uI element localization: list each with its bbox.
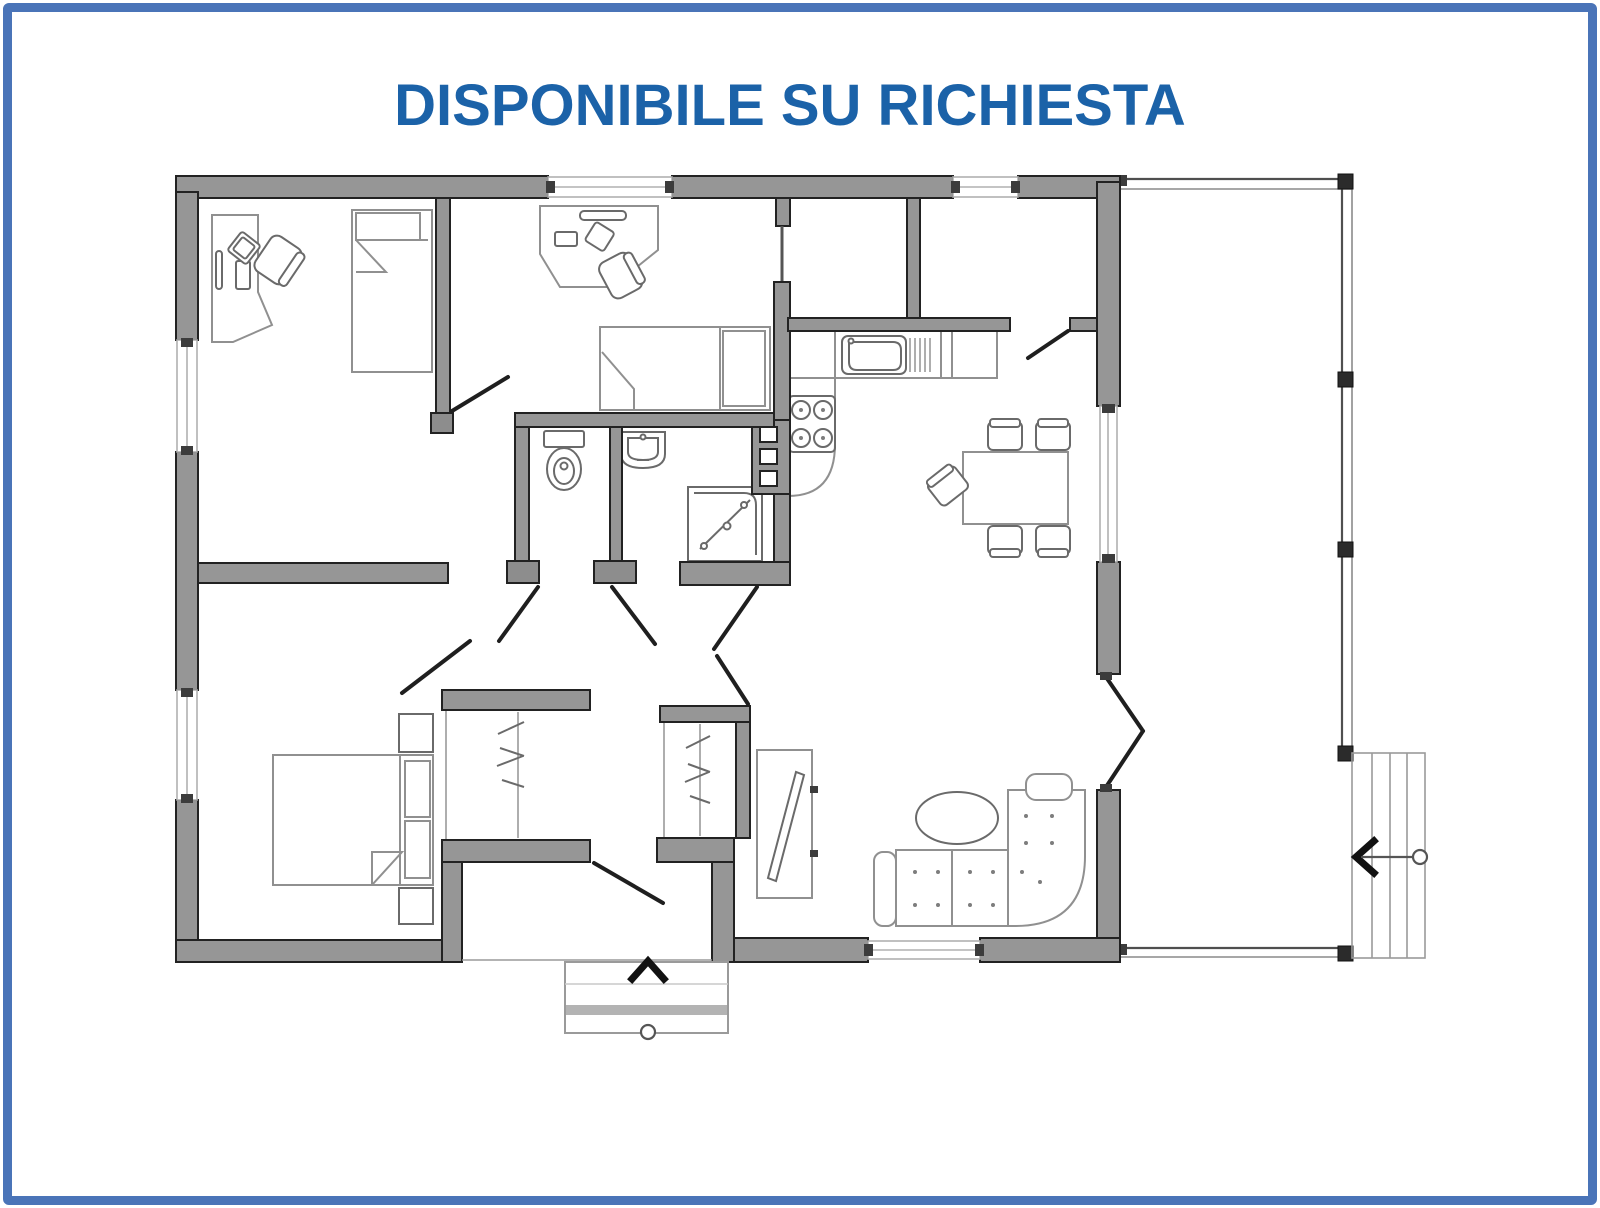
window-icon (864, 941, 984, 959)
window-icon (546, 177, 674, 197)
porch-post (1338, 542, 1353, 557)
porch-post (1338, 174, 1353, 189)
window-icon (951, 177, 1020, 197)
dining-chair-icon (988, 526, 1022, 557)
toilet-icon (544, 431, 584, 490)
tv-cabinet-icon (757, 750, 818, 898)
porch-steps-icon (1352, 753, 1427, 958)
office-chair-icon (251, 233, 307, 290)
porch-post (1338, 746, 1353, 761)
porch-post (1338, 946, 1353, 961)
bathroom (544, 431, 762, 561)
living-area (757, 750, 1085, 926)
coffee-table-icon (916, 792, 998, 844)
shower-icon (688, 487, 762, 561)
bedroom (540, 206, 770, 410)
page: DISPONIBILE SU RICHIESTA (0, 0, 1600, 1208)
service-shaft-icon (752, 420, 790, 494)
single-bed-icon (600, 327, 770, 410)
door-leaf (717, 656, 748, 704)
door-leaf (714, 587, 757, 649)
entrance-steps-icon (565, 961, 728, 1039)
dining-chair-icon (1036, 419, 1070, 450)
door-leaf (612, 587, 655, 644)
wardrobe-icon (446, 710, 524, 840)
porch (1118, 174, 1427, 961)
door-leaf (402, 641, 470, 693)
dining-chair-icon (1036, 526, 1070, 557)
porch-post (1338, 372, 1353, 387)
door-leaf (594, 863, 663, 903)
dining-area (924, 419, 1070, 557)
wardrobe-icon (664, 722, 710, 838)
double-bed-icon (273, 755, 433, 885)
door-leaf (1106, 731, 1143, 787)
kitchen-sink-icon (842, 336, 906, 374)
nightstand-icon (399, 714, 433, 752)
washbasin-icon (621, 432, 665, 468)
window-icon (1100, 404, 1117, 563)
dining-table-icon (963, 452, 1068, 524)
floor-plan (0, 0, 1600, 1208)
dining-chair-icon (988, 419, 1022, 450)
nightstand-icon (399, 888, 433, 924)
window-icon (177, 338, 197, 455)
door-leaf (1028, 331, 1068, 358)
door-leaf (1106, 677, 1143, 731)
door-leaf (452, 377, 508, 411)
single-bed-icon (352, 210, 432, 372)
door-leaf (499, 587, 538, 641)
window-icon (177, 688, 197, 803)
master-bedroom (273, 714, 433, 924)
study-bedroom (212, 210, 432, 372)
